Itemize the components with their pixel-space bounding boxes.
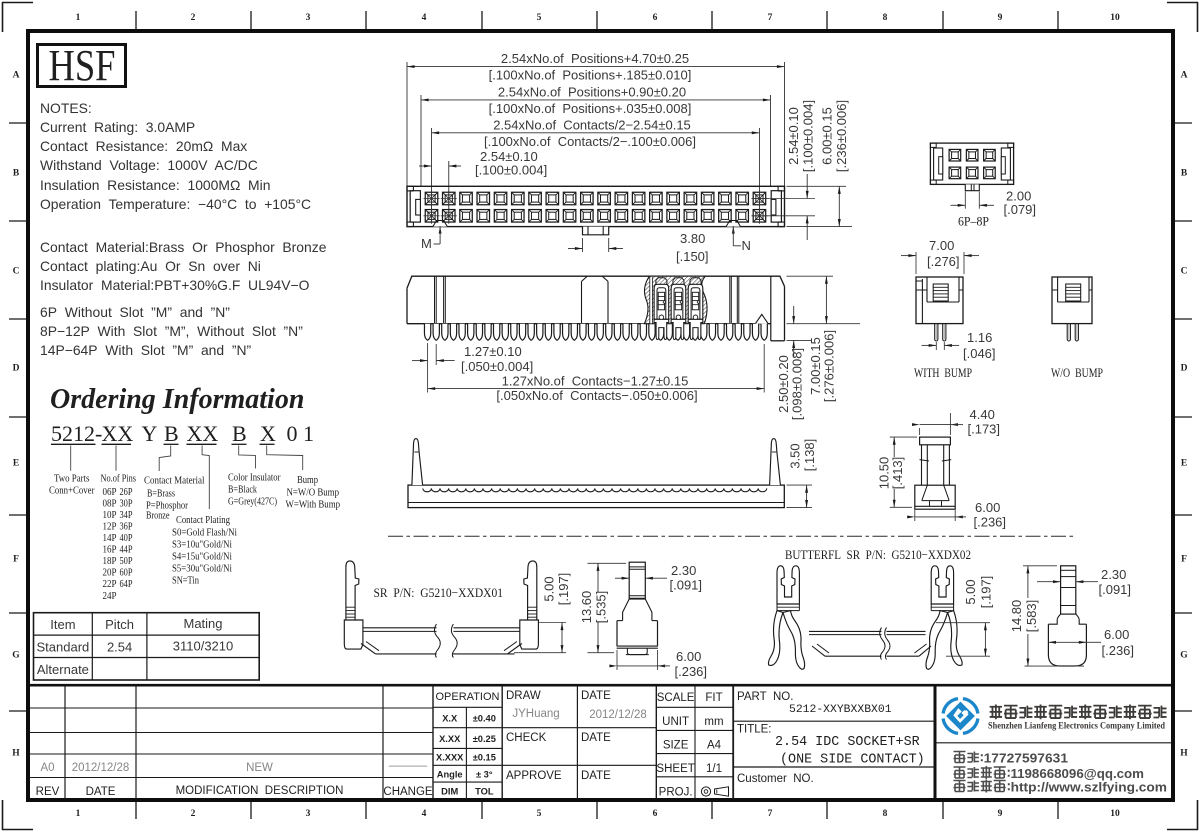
svg-text:9: 9: [998, 13, 1003, 23]
svg-text:[.079]: [.079]: [1004, 202, 1037, 217]
svg-text:mm: mm: [704, 716, 723, 728]
svg-text:[.276±0.006]: [.276±0.006]: [822, 330, 837, 402]
svg-text:[.197]: [.197]: [979, 576, 994, 609]
svg-text:E: E: [1181, 459, 1187, 469]
svg-text:JYHuang: JYHuang: [512, 708, 559, 720]
svg-text:[.173]: [.173]: [968, 422, 1001, 437]
svg-text:4: 4: [422, 13, 427, 23]
svg-text:[.091]: [.091]: [670, 578, 703, 593]
svg-text:MODIFICATION DESCRIPTION: MODIFICATION DESCRIPTION: [176, 785, 344, 797]
svg-text:FIT: FIT: [705, 692, 722, 704]
svg-text:TITLE:: TITLE:: [737, 724, 772, 736]
svg-text:2.54: 2.54: [107, 639, 132, 654]
svg-text:3.80: 3.80: [680, 231, 705, 246]
svg-text:B: B: [1181, 169, 1188, 179]
svg-text:A: A: [13, 71, 20, 81]
svg-text:(ONE SIDE CONTACT): (ONE SIDE CONTACT): [780, 753, 925, 768]
svg-text:M: M: [421, 236, 432, 251]
svg-text:F: F: [1181, 555, 1187, 565]
svg-text:± 3°: ± 3°: [476, 770, 493, 780]
svg-text:[.100xNo.of Contacts/2−.100±0: [.100xNo.of Contacts/2−.100±0.006]: [484, 134, 696, 149]
svg-text:18P: 18P: [103, 556, 117, 567]
svg-text:1: 1: [76, 13, 81, 23]
svg-text:2: 2: [191, 13, 196, 23]
svg-text:∶http://www.szlfying.com: ∶http://www.szlfying.com: [1007, 780, 1167, 795]
svg-text:22P: 22P: [103, 579, 117, 590]
svg-text:9: 9: [998, 809, 1003, 819]
svg-text:Angle: Angle: [437, 770, 463, 780]
svg-text:10: 10: [1110, 809, 1120, 819]
svg-text:No.of Pins: No.of Pins: [101, 474, 137, 485]
svg-text:±0.15: ±0.15: [473, 753, 496, 763]
svg-text:X.XX: X.XX: [439, 734, 461, 744]
svg-text:PROJ.: PROJ.: [659, 787, 693, 799]
svg-text:C: C: [13, 267, 20, 277]
svg-text:Pitch: Pitch: [105, 617, 134, 632]
svg-text:[.236]: [.236]: [974, 515, 1007, 530]
svg-text:5212-: 5212-: [51, 421, 102, 446]
svg-text:G: G: [12, 651, 20, 661]
svg-text:Bump: Bump: [297, 475, 318, 486]
svg-text:8: 8: [883, 13, 888, 23]
svg-text:G=Grey(427C): G=Grey(427C): [228, 497, 277, 508]
svg-text:D: D: [1181, 364, 1188, 374]
svg-text:BUTTERFL SR P/N: G5210−XXDX: BUTTERFL SR P/N: G5210−XXDX02: [785, 547, 971, 562]
svg-text:13.60: 13.60: [579, 591, 594, 624]
svg-text:16P: 16P: [103, 545, 117, 556]
svg-text:XX: XX: [187, 421, 219, 446]
svg-text:36P: 36P: [120, 521, 133, 532]
svg-text:DATE: DATE: [581, 732, 611, 744]
svg-text:Item: Item: [50, 617, 75, 632]
svg-text:12P: 12P: [103, 521, 117, 532]
svg-text:34P: 34P: [120, 510, 133, 521]
svg-text:7: 7: [768, 13, 773, 23]
svg-text:NOTES:: NOTES:: [40, 100, 92, 116]
svg-text:5: 5: [537, 809, 542, 819]
svg-text:[.276]: [.276]: [927, 254, 960, 269]
svg-text:[.050±0.004]: [.050±0.004]: [461, 359, 533, 374]
svg-text:0 1: 0 1: [287, 421, 315, 446]
svg-text:REV: REV: [36, 786, 60, 798]
svg-text:40P: 40P: [120, 533, 133, 544]
svg-text:B=Brass: B=Brass: [147, 489, 175, 500]
svg-text:24P: 24P: [103, 591, 117, 602]
svg-text:[.100xNo.of Positions+.185±0.: [.100xNo.of Positions+.185±0.010]: [489, 68, 692, 83]
svg-text:1.27±0.10: 1.27±0.10: [464, 344, 522, 359]
svg-text:±0.40: ±0.40: [473, 714, 496, 724]
svg-text:TOL: TOL: [475, 787, 494, 797]
svg-text:B=Black: B=Black: [228, 485, 258, 496]
svg-text:Color Insulator: Color Insulator: [228, 473, 281, 484]
svg-text:DIM: DIM: [441, 787, 458, 797]
svg-text:Alternate: Alternate: [37, 662, 89, 677]
svg-text:DATE: DATE: [581, 770, 611, 782]
svg-text:8: 8: [883, 809, 888, 819]
svg-text:––––––: ––––––: [389, 760, 428, 772]
svg-text:DRAW: DRAW: [506, 690, 541, 702]
svg-text:6P Without Slot ”M” and ”: 6P Without Slot ”M” and ”N”: [40, 304, 230, 320]
svg-text:1.16: 1.16: [967, 330, 992, 345]
svg-text:Contact plating:Au Or Sn o: Contact plating:Au Or Sn over Ni: [40, 258, 261, 274]
svg-text:Bronze: Bronze: [146, 511, 170, 522]
svg-text:14P−64P With Slot ”M” and: 14P−64P With Slot ”M” and ”N”: [40, 342, 252, 358]
svg-text:3: 3: [306, 13, 311, 23]
svg-text:C: C: [1181, 267, 1188, 277]
svg-text:2.30: 2.30: [1101, 567, 1126, 582]
svg-text:8P−12P With Slot ”M”, With: 8P−12P With Slot ”M”, Without Slot ”N”: [40, 323, 303, 339]
svg-text:7: 7: [768, 809, 773, 819]
svg-text:D: D: [13, 364, 20, 374]
svg-text:Standard: Standard: [37, 639, 90, 654]
svg-text:5212-XXYBXXBX01: 5212-XXYBXXBX01: [789, 704, 892, 716]
svg-text:2.54xNo.of Contacts/2−2.54±0.: 2.54xNo.of Contacts/2−2.54±0.15: [493, 118, 691, 133]
svg-text:∶17727597631: ∶17727597631: [980, 751, 1068, 766]
svg-text:H: H: [12, 749, 20, 759]
svg-text:SN=Tin: SN=Tin: [172, 575, 199, 586]
svg-text:[.100xNo.of Positions+.035±0.: [.100xNo.of Positions+.035±0.008]: [489, 101, 692, 116]
svg-text:HSF: HSF: [49, 41, 116, 90]
svg-text:G: G: [1180, 651, 1188, 661]
svg-text:X.XXX: X.XXX: [436, 753, 464, 763]
svg-text:APPROVE: APPROVE: [506, 770, 562, 782]
svg-text:A: A: [1181, 71, 1188, 81]
svg-text:UNIT: UNIT: [662, 716, 689, 728]
svg-text:08P: 08P: [103, 498, 117, 509]
svg-text:26P: 26P: [120, 487, 133, 498]
svg-text:PART NO.: PART NO.: [737, 691, 793, 703]
svg-text:W=With Bump: W=With Bump: [286, 500, 341, 511]
svg-text:B: B: [164, 421, 179, 446]
svg-text:E: E: [13, 459, 19, 469]
svg-text:Contact Material: Contact Material: [144, 476, 205, 487]
svg-text:3.50: 3.50: [788, 443, 803, 468]
svg-text:60P: 60P: [120, 568, 133, 579]
svg-text:2.54xNo.of Positions+0.90±0.2: 2.54xNo.of Positions+0.90±0.20: [498, 85, 686, 100]
svg-text:S0=Gold Flash/Ni: S0=Gold Flash/Ni: [172, 528, 237, 539]
svg-text:2.54xNo.of Positions+4.70±0.2: 2.54xNo.of Positions+4.70±0.25: [501, 51, 689, 66]
svg-text:20P: 20P: [103, 568, 117, 579]
svg-text:A0: A0: [40, 762, 54, 774]
svg-text:Y: Y: [142, 421, 158, 446]
svg-text:[.150]: [.150]: [676, 249, 709, 264]
svg-text:6.00: 6.00: [676, 649, 701, 664]
svg-text:[.535]: [.535]: [594, 591, 609, 624]
svg-text:5.00: 5.00: [542, 576, 557, 601]
svg-text:[.100±0.004]: [.100±0.004]: [801, 100, 816, 172]
svg-text:CHECK: CHECK: [506, 732, 547, 744]
svg-text:[.050xNo.of Contacts−.050±0.0: [.050xNo.of Contacts−.050±0.006]: [496, 388, 697, 403]
svg-text:[.046]: [.046]: [963, 346, 996, 361]
svg-text:5: 5: [537, 13, 542, 23]
svg-text:B: B: [13, 169, 20, 179]
svg-text:4.40: 4.40: [970, 407, 995, 422]
svg-text:3110/3210: 3110/3210: [173, 638, 234, 653]
svg-text:DATE: DATE: [581, 690, 611, 702]
svg-text:Operation Temperature: −40°C: Operation Temperature: −40°C to +105°C: [40, 196, 311, 212]
svg-text:06P: 06P: [103, 487, 117, 498]
svg-text:2012/12/28: 2012/12/28: [72, 762, 130, 774]
svg-text:14P: 14P: [103, 533, 117, 544]
svg-text:A4: A4: [707, 740, 722, 752]
svg-text:[.197]: [.197]: [556, 573, 571, 606]
svg-text:WITH BUMP: WITH BUMP: [914, 365, 972, 380]
svg-text:X: X: [260, 421, 276, 446]
svg-text:6: 6: [653, 13, 658, 23]
svg-text:Shenzhen Lianfeng Electronics: Shenzhen Lianfeng Electronics Company Li…: [988, 721, 1165, 731]
svg-text:2.30: 2.30: [671, 563, 696, 578]
svg-text:[.583]: [.583]: [1024, 600, 1039, 633]
svg-text:Contact Resistance: 20mΩ Ma: Contact Resistance: 20mΩ Max: [40, 138, 247, 154]
svg-text:Mating: Mating: [183, 616, 222, 631]
svg-text:10P: 10P: [103, 510, 117, 521]
svg-text:4: 4: [422, 809, 427, 819]
svg-text:N=W/O Bump: N=W/O Bump: [287, 488, 340, 499]
svg-text:5.00: 5.00: [963, 579, 978, 604]
svg-text:3: 3: [306, 809, 311, 819]
svg-text:[.091]: [.091]: [1099, 582, 1132, 597]
svg-text:±0.25: ±0.25: [473, 734, 496, 744]
svg-text:1/1: 1/1: [706, 763, 722, 775]
svg-text:[.098±0.008]: [.098±0.008]: [790, 348, 805, 420]
svg-text:1.27xNo.of Contacts−1.27±0.15: 1.27xNo.of Contacts−1.27±0.15: [502, 374, 689, 389]
svg-text:6P–8P: 6P–8P: [958, 214, 989, 229]
svg-text:Withstand Voltage: 1000V AC: Withstand Voltage: 1000V AC/DC: [40, 157, 258, 173]
svg-text:CHANGE: CHANGE: [383, 786, 433, 798]
svg-text:Ordering Information: Ordering Information: [50, 384, 304, 415]
svg-text:[.236]: [.236]: [1102, 643, 1135, 658]
svg-text:6.00: 6.00: [975, 500, 1000, 515]
svg-text:X.X: X.X: [442, 714, 458, 724]
svg-text:[.236±0.006]: [.236±0.006]: [834, 100, 849, 172]
svg-text:[.138]: [.138]: [802, 439, 817, 472]
svg-text:DATE: DATE: [86, 786, 116, 798]
svg-text:6.00±0.15: 6.00±0.15: [820, 107, 835, 165]
svg-text:30P: 30P: [120, 498, 133, 509]
svg-text:7.00: 7.00: [929, 238, 954, 253]
svg-text:6.00: 6.00: [1104, 627, 1129, 642]
svg-text:S4=15u"Gold/Ni: S4=15u"Gold/Ni: [172, 552, 232, 563]
svg-text:Current Rating: 3.0AMP: Current Rating: 3.0AMP: [40, 119, 195, 135]
svg-text:B: B: [232, 421, 247, 446]
svg-text:6: 6: [653, 809, 658, 819]
svg-text:Contact Material:Brass Or P: Contact Material:Brass Or Phosphor Bronz…: [40, 239, 327, 255]
svg-text:44P: 44P: [120, 545, 133, 556]
svg-text:2: 2: [191, 809, 196, 819]
svg-text:SCALE: SCALE: [657, 692, 695, 704]
svg-text:64P: 64P: [120, 579, 133, 590]
svg-text:SR P/N: G5210−XXDX01: SR P/N: G5210−XXDX01: [374, 585, 504, 600]
svg-text:SHEET: SHEET: [656, 763, 694, 775]
svg-text:[.100±0.004]: [.100±0.004]: [475, 163, 547, 178]
svg-text:1: 1: [76, 809, 81, 819]
svg-text:Contact Plating: Contact Plating: [176, 515, 230, 526]
svg-text:[.413]: [.413]: [890, 457, 905, 490]
svg-text:10: 10: [1110, 13, 1120, 23]
svg-text:N: N: [742, 238, 751, 253]
svg-text:Customer NO.: Customer NO.: [737, 773, 814, 785]
svg-text:S3=10u"Gold/Ni: S3=10u"Gold/Ni: [172, 540, 232, 551]
svg-text:Two Parts: Two Parts: [54, 474, 90, 485]
svg-text:OPERATION: OPERATION: [436, 691, 500, 703]
svg-text:S5=30u"Gold/Ni: S5=30u"Gold/Ni: [172, 563, 232, 574]
svg-text:F: F: [13, 555, 19, 565]
svg-text:Insulation Resistance: 1000M: Insulation Resistance: 1000MΩ Min: [40, 177, 270, 193]
svg-text:SIZE: SIZE: [663, 740, 689, 752]
svg-text:Insulator Material:PBT+30%G.F: Insulator Material:PBT+30%G.F UL94V−O: [40, 277, 310, 293]
svg-text:NEW: NEW: [246, 762, 273, 774]
svg-text:2012/12/28: 2012/12/28: [589, 709, 647, 721]
svg-text:W/O BUMP: W/O BUMP: [1051, 365, 1103, 380]
svg-text:2.54 IDC SOCKET+SR: 2.54 IDC SOCKET+SR: [775, 735, 920, 750]
svg-text:H: H: [1180, 749, 1188, 759]
svg-text:50P: 50P: [120, 556, 133, 567]
svg-text:Conn+Cover: Conn+Cover: [49, 486, 95, 497]
svg-text:XX: XX: [102, 421, 134, 446]
svg-text:14.80: 14.80: [1009, 600, 1024, 633]
svg-text:[.236]: [.236]: [675, 664, 708, 679]
svg-text:2.54±0.10: 2.54±0.10: [786, 107, 801, 165]
